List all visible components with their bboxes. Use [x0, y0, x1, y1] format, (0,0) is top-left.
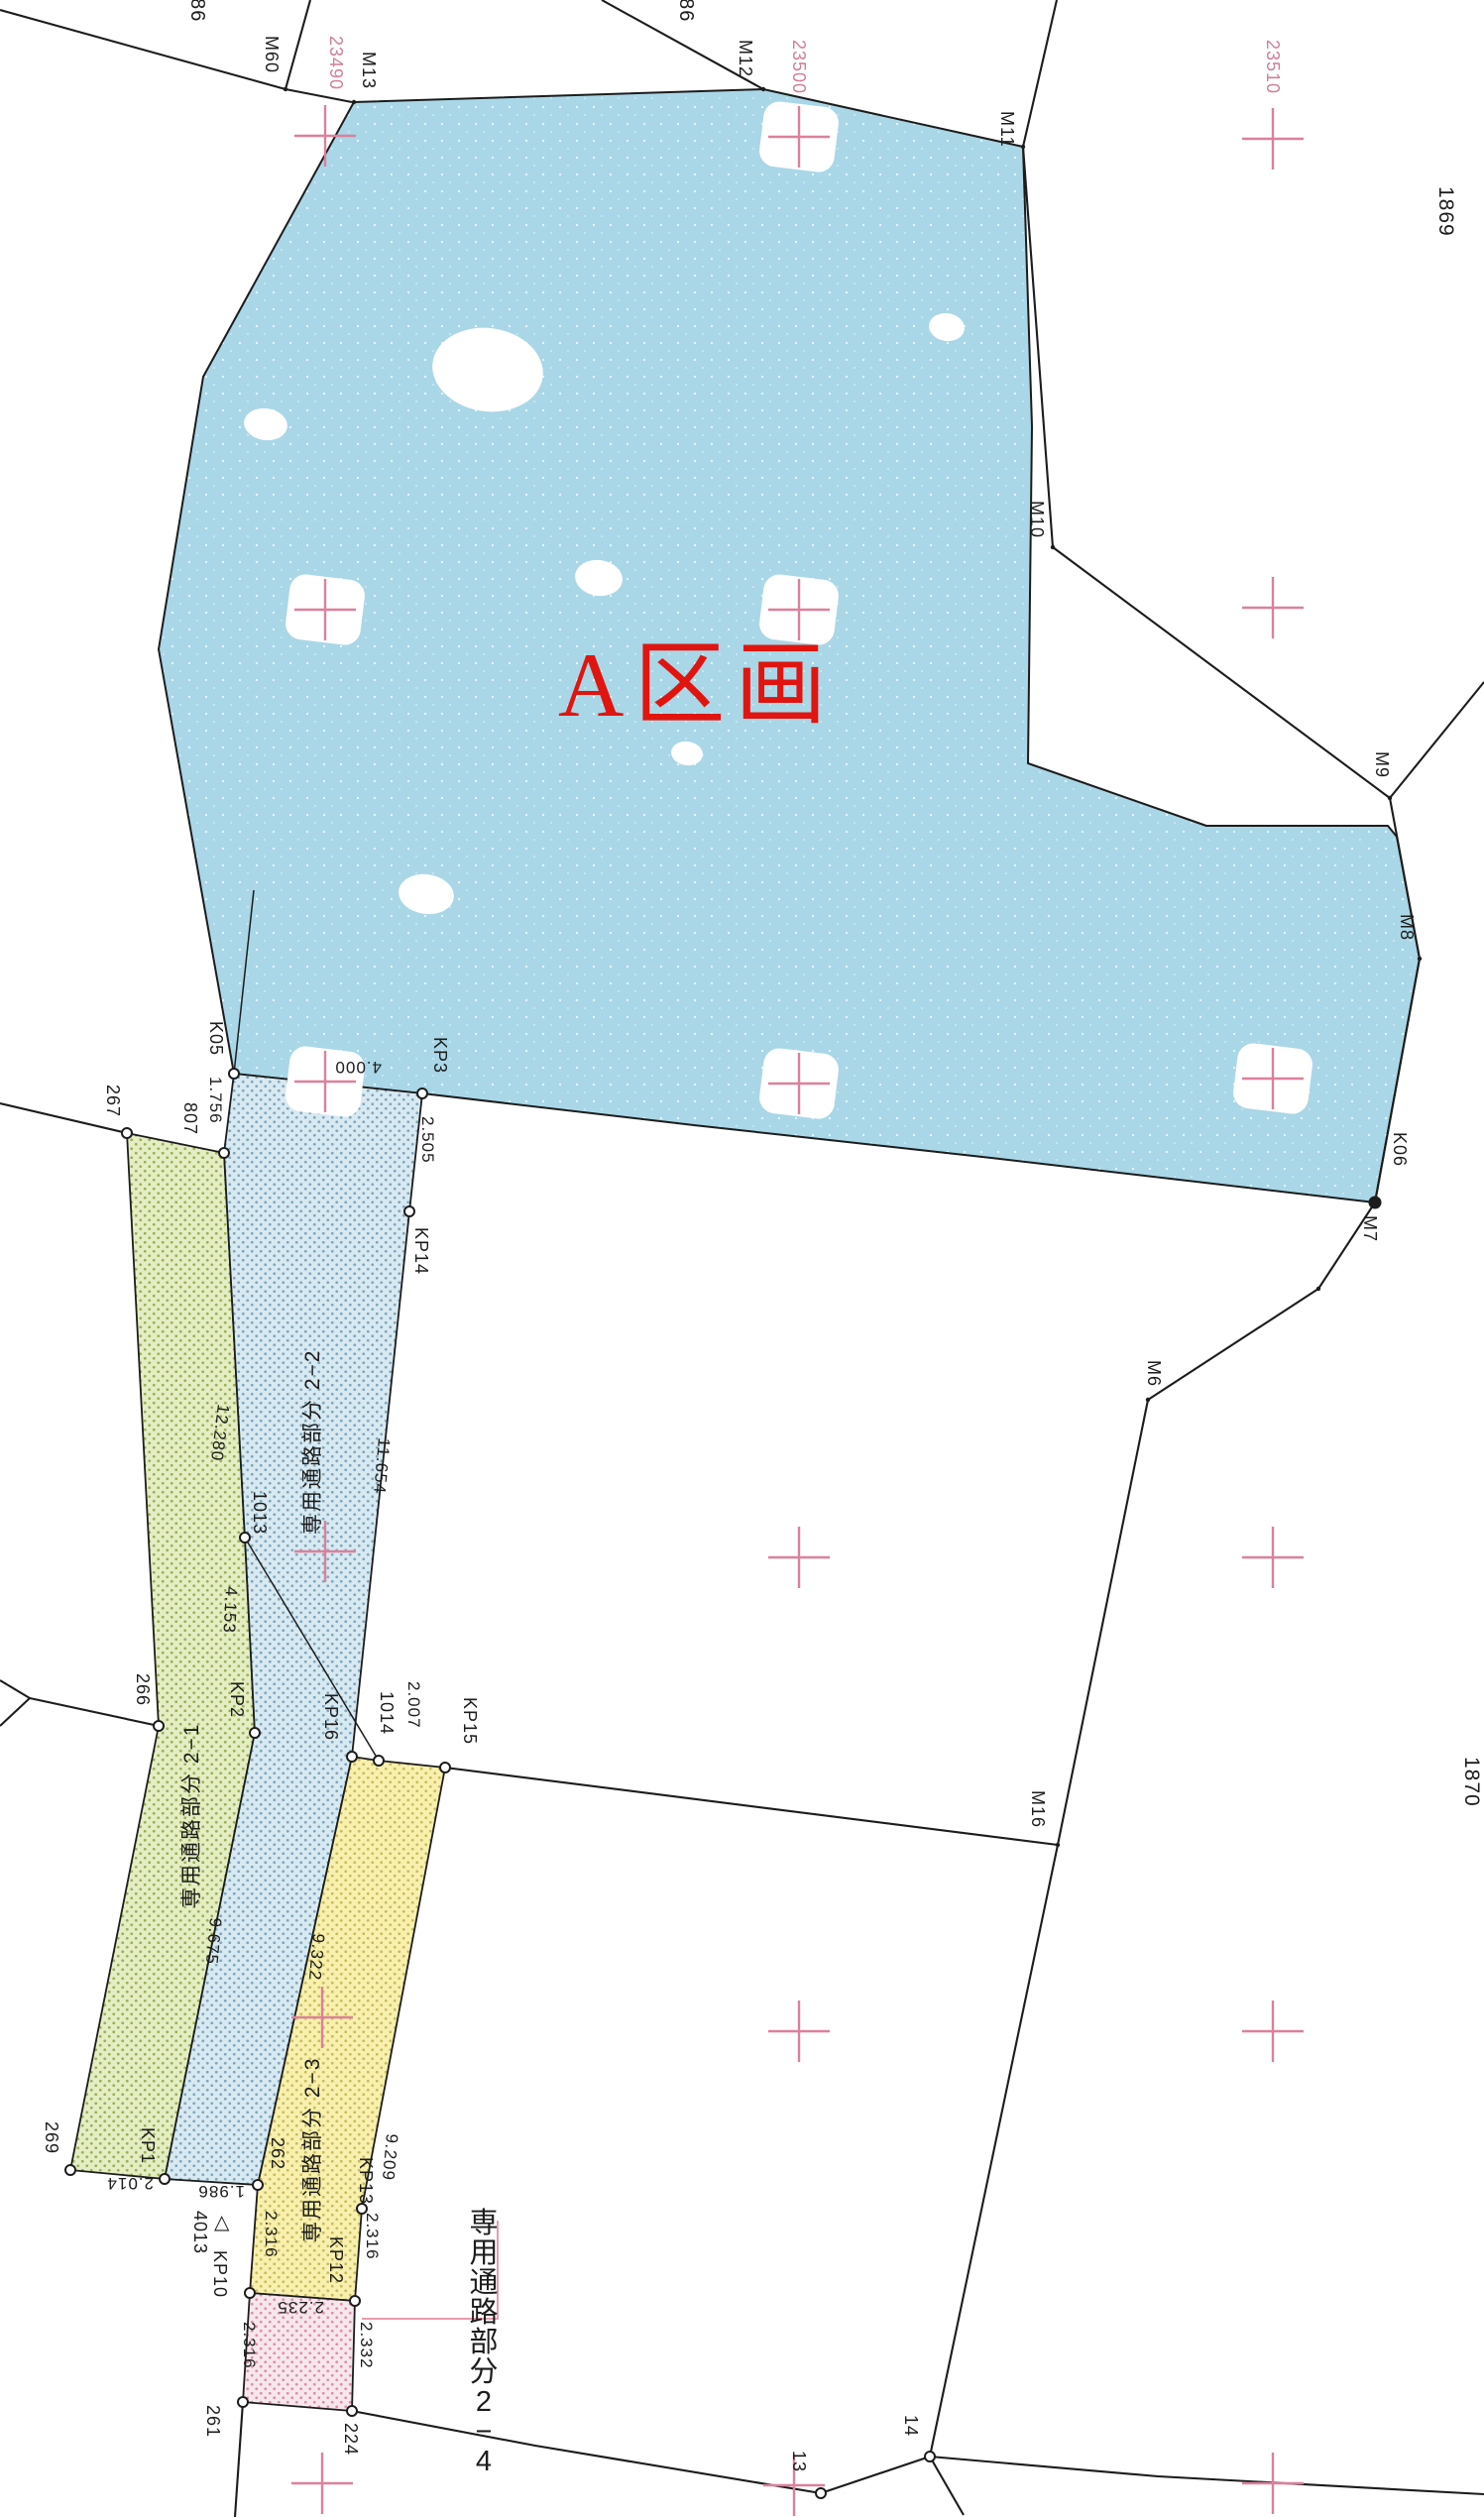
boundary-line [445, 1768, 1058, 1845]
boundary-line [235, 2402, 243, 2517]
map-label-M13: M13 [359, 52, 379, 89]
grid-cross [1242, 108, 1304, 170]
map-label-4153: 4.153 [220, 1586, 241, 1634]
map-label-1870: 1870 [1460, 1757, 1483, 1807]
boundary-line [1058, 1202, 1375, 1845]
map-label-M10: M10 [1027, 501, 1047, 538]
survey-point-filled [1369, 1197, 1382, 1209]
map-label-M6: M6 [1144, 1360, 1164, 1387]
survey-point-tick [284, 87, 287, 91]
grid-cross [1242, 1527, 1304, 1588]
map-canvas: 186M6023490M13186M1223500M11235101869M10… [0, 0, 1484, 2517]
map-label-KP12: KP12 [326, 2236, 346, 2284]
survey-point-open [240, 1533, 250, 1543]
map-label-261: 261 [203, 2405, 223, 2438]
map-label-1013: 1013 [250, 1491, 270, 1535]
map-label-2235: 2.235 [277, 2298, 324, 2317]
survey-point-open [350, 2296, 360, 2306]
boundary-line [1023, 147, 1390, 798]
survey-point-tick [1146, 1398, 1150, 1402]
survey-point-open [229, 1069, 239, 1079]
map-label-: △ [214, 2212, 230, 2233]
map-label-2316: 2.316 [262, 2211, 281, 2258]
map-label-22: 専用通路部分 2−2 [301, 1349, 324, 1535]
map-label-21: 専用通路部分 2−1 [180, 1723, 203, 1908]
survey-point-open [816, 2488, 826, 2498]
map-label-M7: M7 [1360, 1215, 1380, 1242]
map-label-2316: 2.316 [240, 2322, 259, 2369]
map-label-1986: 1.986 [197, 2182, 245, 2201]
map-label-14: 14 [901, 2415, 921, 2437]
survey-point-open [219, 1148, 229, 1158]
map-label-224: 224 [341, 2423, 361, 2456]
map-label-M8: M8 [1397, 914, 1417, 941]
survey-point-tick [1021, 145, 1025, 149]
survey-point-open [250, 1728, 260, 1738]
map-label-M11: M11 [997, 111, 1017, 148]
map-label-1756: 1.756 [206, 1077, 225, 1124]
survey-point-open [65, 2165, 75, 2175]
boundary-line [930, 2457, 1484, 2494]
map-label-2332: 2.332 [357, 2322, 376, 2369]
region-a-title: A区画 [558, 634, 836, 736]
grid-cross [1242, 2453, 1304, 2514]
boundary-line [352, 2411, 930, 2493]
map-label-KP3: KP3 [430, 1037, 450, 1074]
map-label-807: 807 [180, 1102, 200, 1135]
survey-point-open [417, 1088, 427, 1098]
survey-point-open [347, 1752, 357, 1762]
grid-cross [1242, 577, 1304, 638]
map-label-9209: 9.209 [379, 2133, 401, 2182]
grid-cross [768, 1527, 830, 1588]
map-label-4013: 4013 [190, 2211, 210, 2254]
cadastral-map-scan: 186M6023490M13186M1223500M11235101869M10… [0, 0, 1484, 2517]
survey-point-tick [1316, 1287, 1320, 1291]
survey-point-open [245, 2288, 255, 2298]
map-label-2505: 2.505 [418, 1116, 437, 1164]
map-label-K06: K06 [1390, 1132, 1410, 1167]
map-label-23490: 23490 [326, 36, 346, 90]
survey-point-open [238, 2397, 248, 2407]
map-label-266: 266 [133, 1673, 153, 1706]
map-label-KP14: KP14 [411, 1227, 431, 1275]
map-label-M9: M9 [1372, 751, 1392, 778]
map-label-K05: K05 [206, 1021, 226, 1056]
map-label-2014: 2.014 [106, 2174, 154, 2193]
survey-point-open [253, 2180, 263, 2190]
map-label-KP13: KP13 [356, 2157, 376, 2205]
boundary-line [930, 2457, 964, 2515]
map-label-267: 267 [103, 1085, 123, 1117]
map-label-KP16: KP16 [321, 1693, 341, 1741]
survey-point-open [154, 1721, 164, 1731]
map-label-1014: 1014 [377, 1691, 397, 1735]
survey-point-tick [352, 100, 356, 104]
map-label-KP2: KP2 [227, 1681, 247, 1718]
map-label-1869: 1869 [1434, 186, 1457, 237]
map-label-262: 262 [268, 2137, 287, 2170]
map-label-M16: M16 [1028, 1790, 1048, 1828]
survey-point-open [440, 1763, 450, 1773]
boundary-line [0, 1698, 30, 1726]
grid-cross [291, 2453, 353, 2514]
survey-point-open [347, 2406, 357, 2416]
survey-point-open [122, 1128, 132, 1138]
map-label-23500: 23500 [789, 40, 809, 94]
survey-point-open [925, 2452, 935, 2461]
survey-point-tick [1418, 957, 1422, 961]
map-label-M12: M12 [736, 40, 755, 77]
boundary-line [285, 0, 310, 89]
map-label-KP10: KP10 [210, 2250, 230, 2298]
grid-cross [768, 2001, 830, 2062]
map-label-186: 186 [186, 0, 208, 22]
survey-point-tick [1056, 1843, 1060, 1847]
map-label-KP15: KP15 [460, 1697, 480, 1745]
map-label-269: 269 [42, 2121, 61, 2154]
grid-cross [1242, 2001, 1304, 2062]
survey-point-tick [761, 87, 765, 91]
survey-point-tick [1051, 545, 1055, 549]
map-label-23: 専用通路部分 2−3 [301, 2057, 324, 2242]
survey-point-open [374, 1756, 384, 1766]
map-label-23510: 23510 [1263, 40, 1283, 94]
survey-point-tick [1388, 796, 1392, 800]
boundary-line [930, 1845, 1058, 2457]
map-label-2007: 2.007 [404, 1681, 423, 1729]
map-label-2316: 2.316 [363, 2213, 382, 2260]
map-label-M60: M60 [262, 36, 282, 73]
boundary-line [1023, 0, 1057, 147]
survey-point-open [404, 1206, 414, 1216]
survey-point-open [160, 2174, 170, 2184]
boundary-line [0, 10, 352, 102]
boundary-line [1390, 682, 1484, 798]
map-label-KP1: KP1 [138, 2127, 158, 2164]
map-label-186: 186 [675, 0, 697, 22]
map-label-4000: 4.000 [334, 1058, 382, 1077]
map-label-13: 13 [789, 2451, 809, 2472]
